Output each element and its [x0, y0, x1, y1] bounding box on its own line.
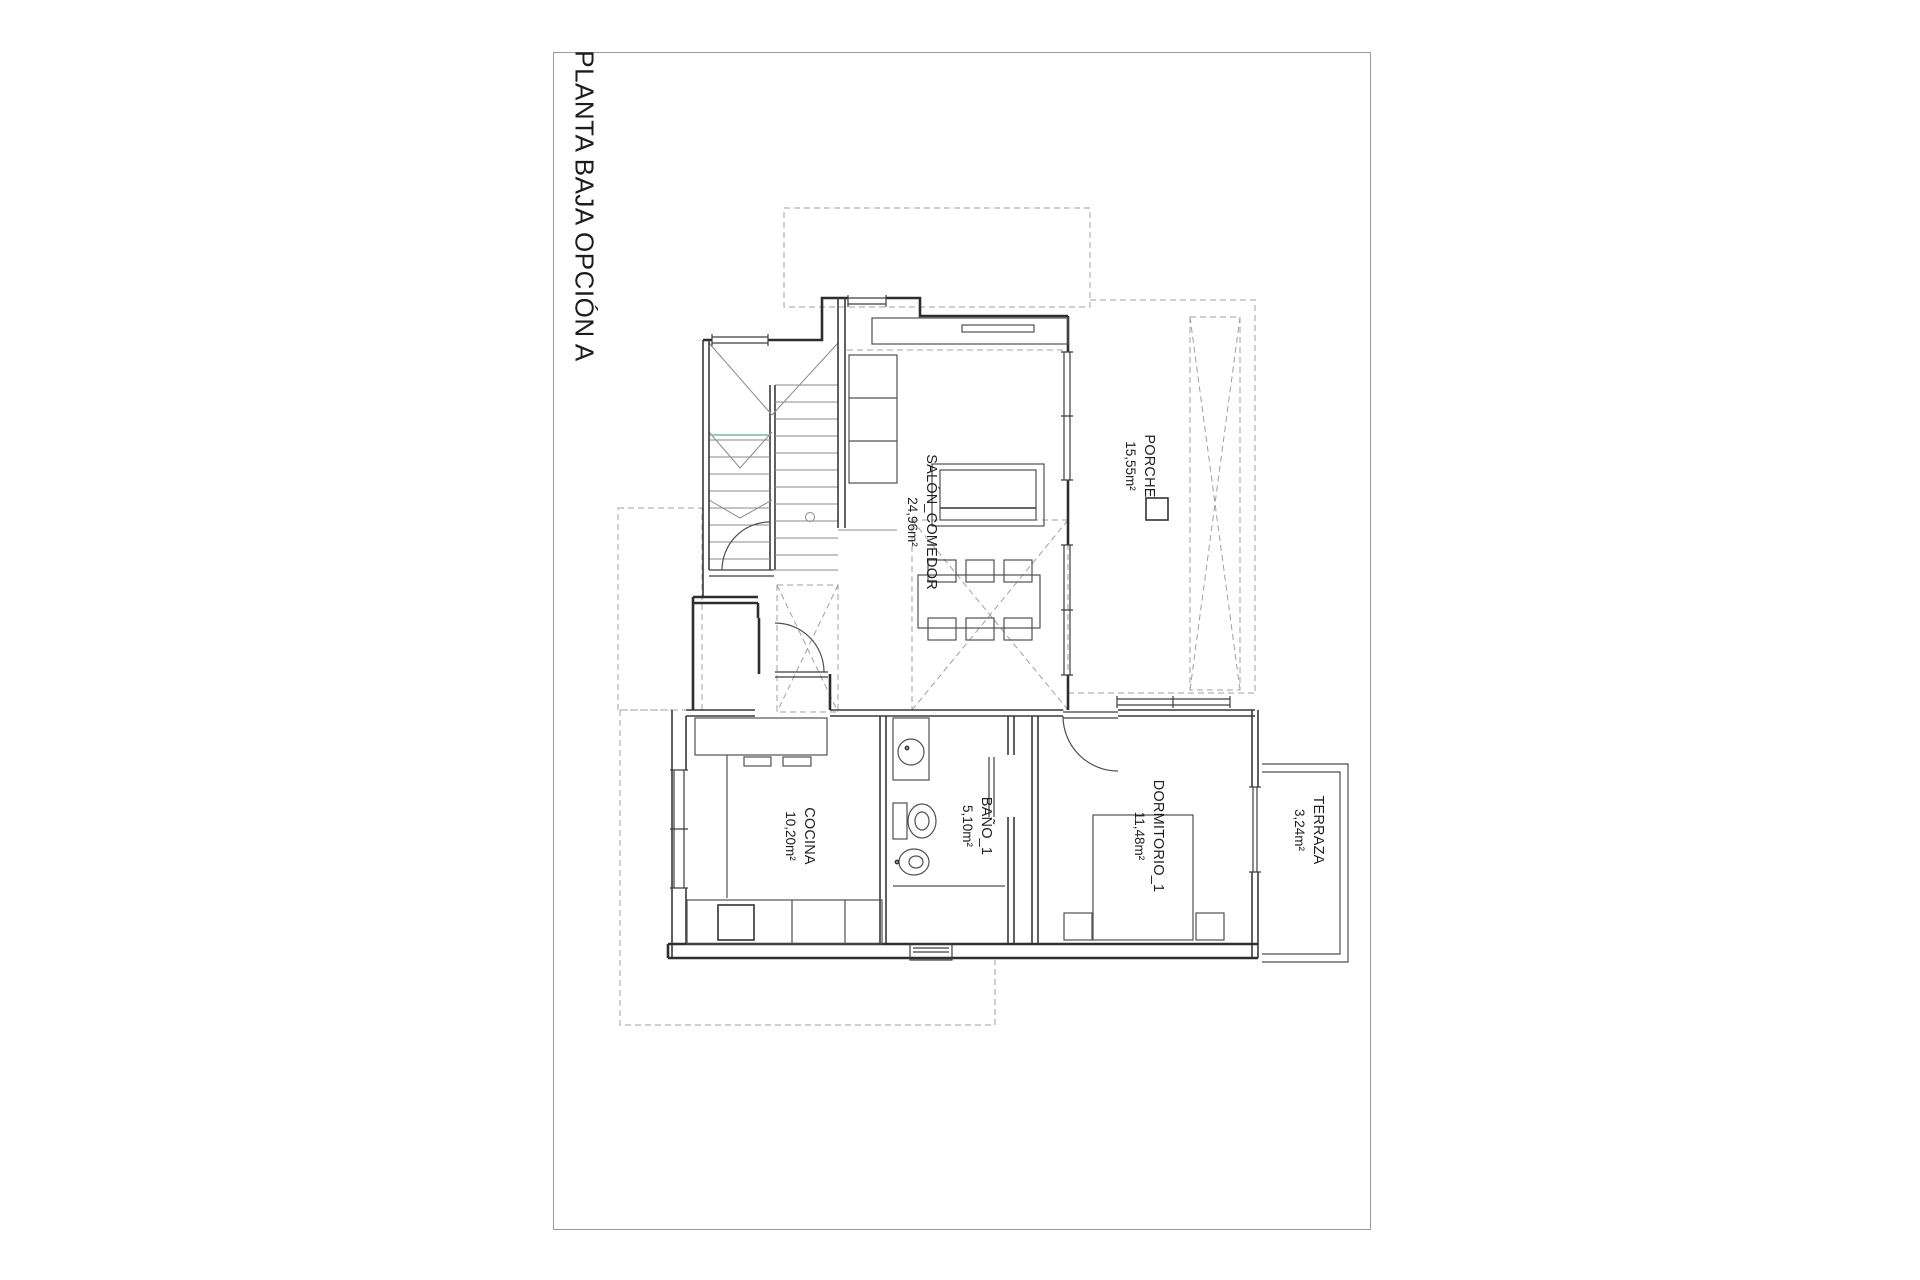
stair-window: [712, 334, 768, 346]
salon-top-window: [848, 295, 886, 307]
kitchen-base-counter: [687, 900, 882, 944]
room-label-cocina: COCINA 10,20m²: [782, 807, 818, 865]
salon-right-window-2: [1061, 545, 1073, 675]
dormitorio-terraza-window: [1249, 787, 1261, 872]
nightstand: [1064, 913, 1092, 940]
dormitorio-porche-window: [1117, 696, 1230, 708]
dormitorio-door-arc: [1063, 716, 1118, 771]
room-label-dormitorio: DORMITORIO_1 11,48m²: [1131, 780, 1167, 893]
staircase: [709, 343, 897, 570]
porch-column: [1146, 498, 1168, 520]
stair-post: [806, 513, 815, 522]
kitchen-stool: [783, 757, 811, 766]
tv-sideboard: [872, 318, 1068, 344]
toilet: [893, 803, 936, 839]
room-label-salon: SALÓN_COMEDOR 24,96m²: [904, 454, 940, 590]
kitchen-appliance: [718, 905, 754, 940]
entry-door-arc: [722, 522, 770, 570]
walls-upper: [693, 297, 1068, 710]
room-label-bano: BAÑO_1 5,10m²: [959, 797, 995, 855]
room-label-terraza: TERRAZA 3,24m²: [1291, 795, 1327, 864]
dashed-outline-left: [618, 508, 702, 710]
tv-screen: [962, 325, 1034, 332]
screenshot-canvas: PLANTA BAJA OPCIÓN A: [0, 0, 1920, 1280]
salon-furniture: [849, 318, 1068, 640]
washbasin: [893, 718, 929, 780]
kitchen-stool: [744, 757, 771, 766]
floor-plan: [0, 0, 1920, 1280]
kitchen-peninsula: [695, 718, 827, 755]
salon-right-window-1: [1061, 352, 1073, 480]
bidet: [895, 849, 929, 875]
nightstand: [1196, 913, 1224, 940]
shelving-unit: [849, 355, 897, 483]
sofa: [932, 464, 1044, 526]
dormitorio-door-leaf: [1063, 712, 1118, 718]
dashed-roof-outline-top: [784, 208, 1090, 307]
room-label-porche: PORCHE 15,55m²: [1122, 434, 1158, 497]
